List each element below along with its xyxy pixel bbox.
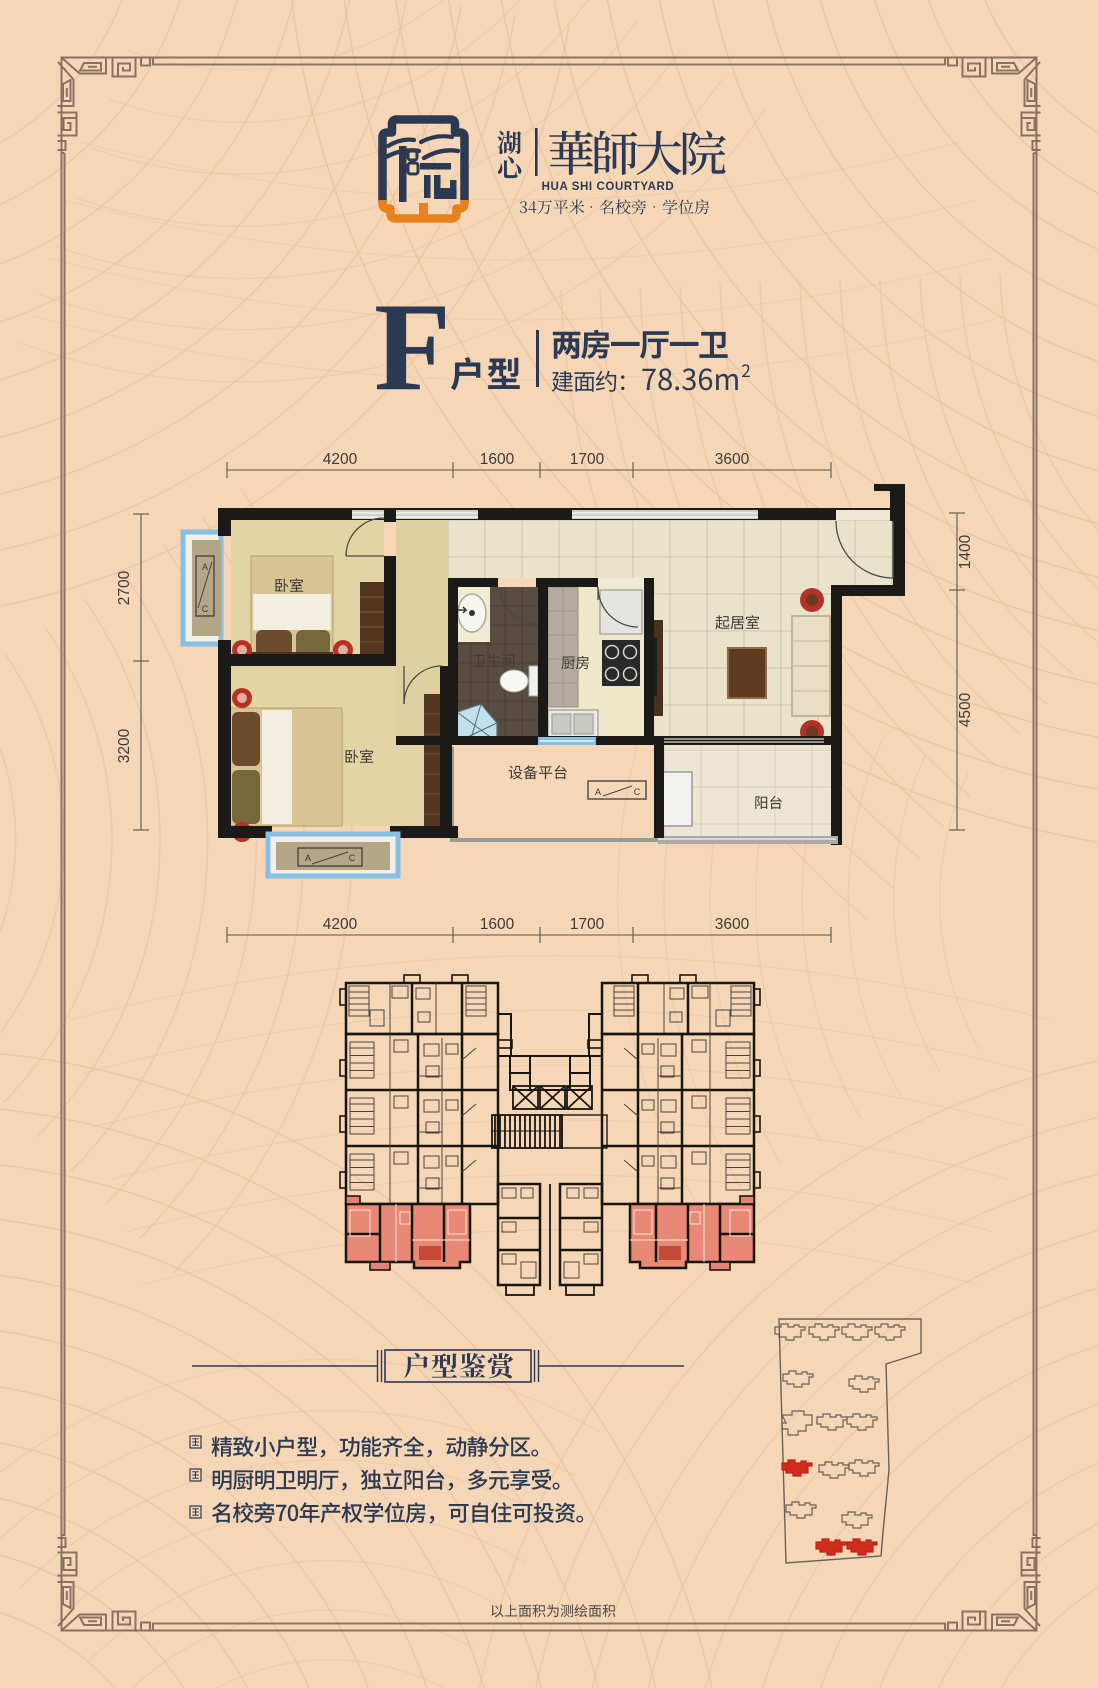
svg-text:1700: 1700 [570,916,605,933]
svg-text:C: C [349,853,356,863]
svg-text:C: C [634,787,641,797]
svg-text:1600: 1600 [480,451,515,468]
svg-text:F: F [374,278,451,417]
svg-text:A: A [202,562,208,572]
svg-text:A: A [305,853,311,863]
svg-text:4500: 4500 [957,692,974,727]
svg-text:HUA SHI COURTYARD: HUA SHI COURTYARD [542,181,675,193]
svg-text:1700: 1700 [570,451,605,468]
svg-text:1600: 1600 [480,916,515,933]
svg-text:4200: 4200 [323,451,358,468]
svg-text:A: A [595,787,601,797]
svg-text:C: C [202,604,209,614]
svg-text:3600: 3600 [715,916,750,933]
svg-text:3200: 3200 [116,728,133,763]
svg-text:2700: 2700 [116,570,133,605]
svg-text:4200: 4200 [323,916,358,933]
svg-text:3600: 3600 [715,451,750,468]
svg-text:1400: 1400 [957,534,974,569]
